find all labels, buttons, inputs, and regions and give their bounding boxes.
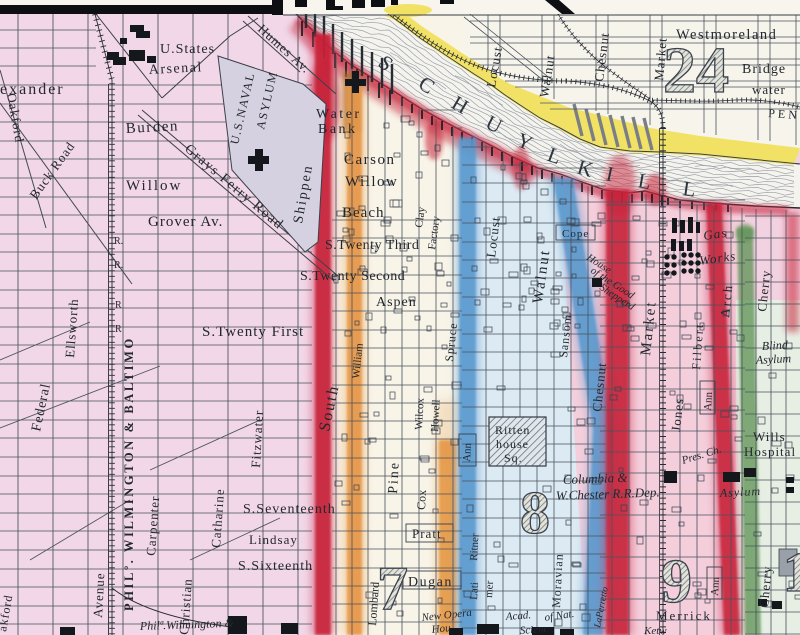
svg-text:Water: Water <box>316 107 362 122</box>
svg-text:Burden: Burden <box>125 118 179 137</box>
svg-text:1: 1 <box>783 542 800 604</box>
svg-text:Pratt: Pratt <box>412 526 442 541</box>
svg-text:R.: R. <box>114 260 123 271</box>
svg-text:Ann: Ann <box>709 576 722 596</box>
svg-text:Hospital: Hospital <box>744 444 796 459</box>
svg-text:Beach: Beach <box>342 205 384 221</box>
svg-text:house: house <box>496 437 529 451</box>
svg-text:Pine: Pine <box>386 461 403 495</box>
svg-text:Bridge: Bridge <box>742 62 786 77</box>
svg-text:Lati: Lati <box>468 582 481 600</box>
svg-text:Ann: Ann <box>461 442 474 462</box>
svg-text:9: 9 <box>661 548 692 616</box>
svg-text:R.: R. <box>114 236 123 247</box>
svg-text:Grover Av.: Grover Av. <box>148 214 223 230</box>
svg-text:Aspen: Aspen <box>376 295 417 310</box>
svg-text:Scienc: Scienc <box>519 623 549 635</box>
svg-text:Bank: Bank <box>318 122 358 137</box>
svg-text:S.Seventeenth: S.Seventeenth <box>243 502 336 517</box>
svg-text:Moravian: Moravian <box>549 553 566 608</box>
svg-text:S.Twenty Second: S.Twenty Second <box>300 269 405 284</box>
svg-text:Fitzwater: Fitzwater <box>248 409 266 468</box>
svg-text:Carson: Carson <box>344 152 396 168</box>
svg-text:S.Sixteenth: S.Sixteenth <box>238 559 313 574</box>
svg-text:Arsenal: Arsenal <box>148 60 203 78</box>
svg-text:Cope: Cope <box>562 228 589 240</box>
svg-text:PEN: PEN <box>768 106 800 122</box>
svg-text:Asylum: Asylum <box>754 351 791 367</box>
svg-text:Westmoreland: Westmoreland <box>676 27 777 43</box>
svg-text:Sq.: Sq. <box>504 451 523 465</box>
svg-text:Wills: Wills <box>753 429 786 444</box>
svg-text:Ritner: Ritner <box>468 533 481 561</box>
svg-text:Dugan: Dugan <box>408 575 453 590</box>
svg-text:Cox: Cox <box>414 489 429 510</box>
svg-text:Lindsay: Lindsay <box>249 532 298 547</box>
svg-text:Howell: Howell <box>429 399 443 432</box>
svg-text:U.States: U.States <box>160 42 215 57</box>
svg-text:Ketw: Ketw <box>643 625 667 635</box>
svg-text:Merrick: Merrick <box>656 608 712 623</box>
svg-text:8: 8 <box>520 480 550 546</box>
svg-text:S.Twenty First: S.Twenty First <box>202 324 304 340</box>
svg-text:water: water <box>752 82 786 97</box>
svg-text:Willow: Willow <box>126 178 182 194</box>
svg-text:S.Twenty Third: S.Twenty Third <box>325 238 419 253</box>
svg-text:mer: mer <box>483 580 496 598</box>
svg-text:R: R <box>115 324 122 335</box>
svg-text:Acad.: Acad. <box>504 609 531 623</box>
svg-text:7: 7 <box>377 555 408 623</box>
svg-text:Hou: Hou <box>430 622 452 635</box>
svg-text:Wilcox: Wilcox <box>413 397 427 430</box>
svg-text:Ritten: Ritten <box>495 423 530 437</box>
svg-text:Asylum: Asylum <box>718 484 761 500</box>
svg-text:Willow: Willow <box>345 174 398 190</box>
svg-text:Ann: Ann <box>702 391 715 411</box>
svg-text:PHILº. WILMINGTON & BALTIMO: PHILº. WILMINGTON & BALTIMO <box>122 336 136 611</box>
svg-text:24: 24 <box>663 34 729 107</box>
svg-text:R: R <box>115 300 122 311</box>
svg-text:Columbia &: Columbia & <box>563 470 629 487</box>
svg-text:Avenue: Avenue <box>90 572 107 618</box>
